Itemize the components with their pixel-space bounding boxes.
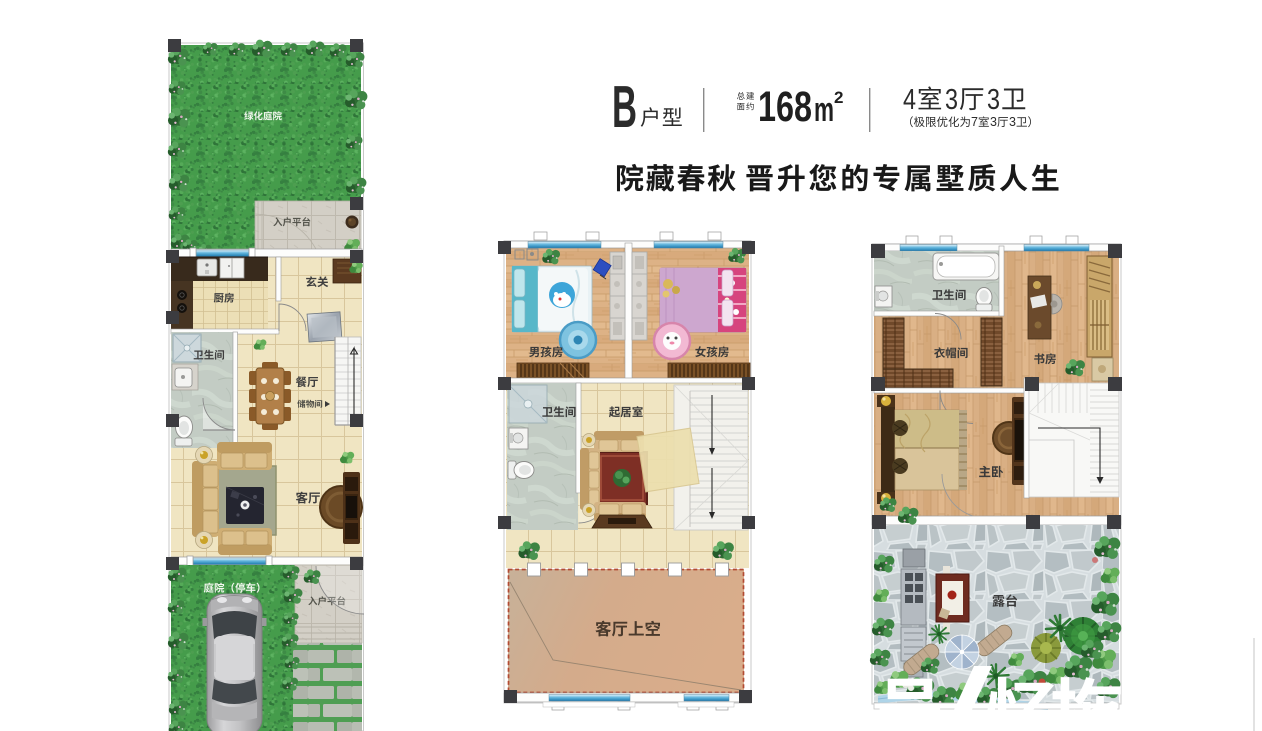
svg-text:2: 2	[834, 88, 843, 107]
svg-text:3: 3	[1009, 115, 1016, 129]
svg-text:3: 3	[990, 115, 997, 129]
svg-text:B: B	[612, 74, 637, 140]
svg-text:3: 3	[945, 84, 958, 116]
svg-text:m: m	[814, 91, 834, 129]
svg-text:168: 168	[758, 83, 812, 131]
svg-text:3: 3	[987, 84, 1000, 116]
svg-text:7: 7	[971, 115, 978, 129]
svg-text:4: 4	[903, 84, 916, 116]
